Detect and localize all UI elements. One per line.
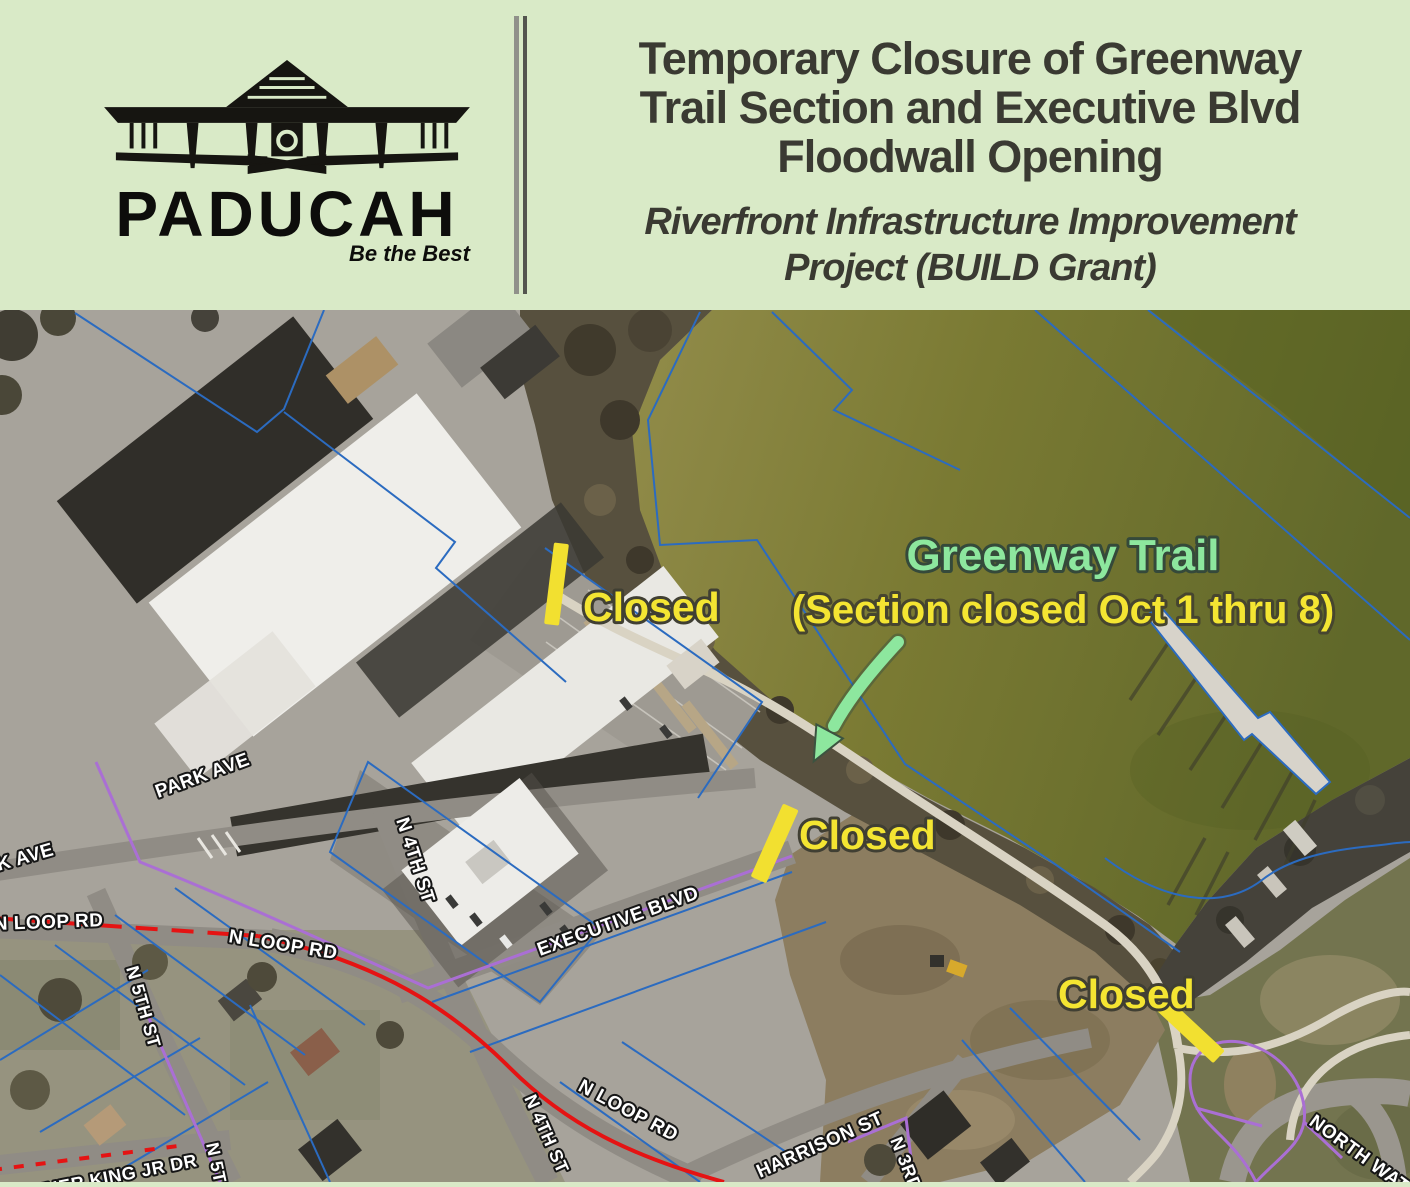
- logo-city-name: PADUCAH: [98, 183, 476, 245]
- aerial-map-image: PARK AVE PARK AVE N LOOP RD N LOOP RD N …: [0, 310, 1410, 1182]
- bridge-logo-icon: [98, 58, 476, 176]
- title-line-3: Floodwall Opening: [555, 132, 1385, 181]
- header-divider: [514, 16, 527, 294]
- subtitle-line-1: Riverfront Infrastructure Improvement: [555, 199, 1385, 245]
- greenway-trail-label: Greenway Trail: [906, 531, 1219, 580]
- closed-label-1: Closed: [583, 584, 720, 630]
- announcement-title-block: Temporary Closure of Greenway Trail Sect…: [555, 34, 1385, 291]
- subtitle-line-2: Project (BUILD Grant): [555, 245, 1385, 291]
- closed-label-2: Closed: [799, 812, 936, 858]
- title-line-1: Temporary Closure of Greenway: [555, 34, 1385, 83]
- aerial-map: PARK AVE PARK AVE N LOOP RD N LOOP RD N …: [0, 310, 1410, 1182]
- street-label-n-loop-rd: N LOOP RD: [0, 910, 104, 935]
- closure-note-label: (Section closed Oct 1 thru 8): [792, 588, 1334, 632]
- closed-label-3: Closed: [1058, 971, 1195, 1017]
- title-line-2: Trail Section and Executive Blvd: [555, 83, 1385, 132]
- paducah-logo: PADUCAH Be the Best: [98, 58, 476, 267]
- header-banner: PADUCAH Be the Best Temporary Closure of…: [0, 0, 1410, 310]
